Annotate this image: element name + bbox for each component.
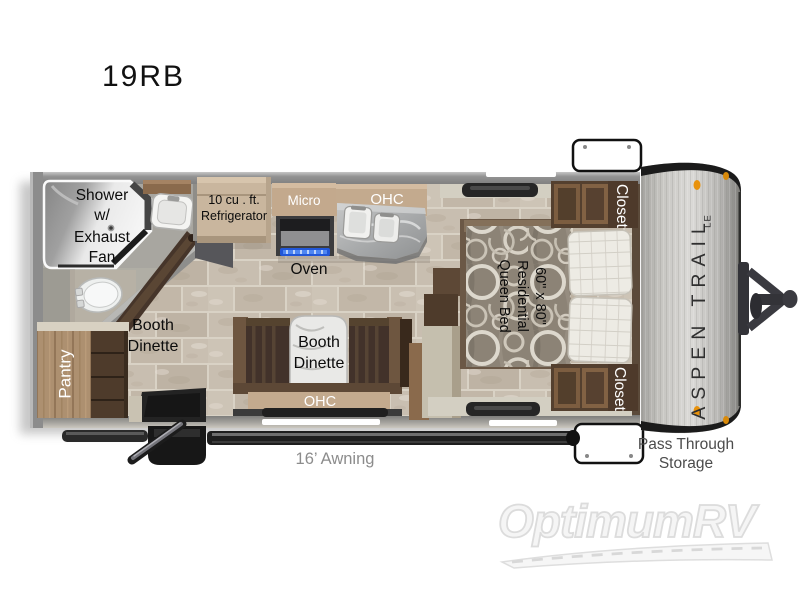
svg-text:Micro: Micro <box>288 193 321 208</box>
svg-text:Booth: Booth <box>132 317 174 334</box>
svg-text:Queen Bed: Queen Bed <box>496 259 512 332</box>
svg-text:16’ Awning: 16’ Awning <box>296 450 375 468</box>
svg-text:Dinette: Dinette <box>128 338 179 355</box>
svg-text:OHC: OHC <box>304 394 336 410</box>
svg-text:Fan: Fan <box>89 249 116 266</box>
svg-text:Closet: Closet <box>613 184 630 229</box>
svg-text:Pantry: Pantry <box>55 349 74 399</box>
svg-text:60" x 80": 60" x 80" <box>532 267 548 325</box>
svg-text:LE: LE <box>703 214 714 228</box>
svg-text:OptimumRV: OptimumRV <box>498 495 759 547</box>
svg-text:19RB: 19RB <box>102 60 185 93</box>
svg-text:Exhaust: Exhaust <box>74 229 131 246</box>
svg-text:Storage: Storage <box>659 455 713 472</box>
svg-text:Shower: Shower <box>76 187 129 204</box>
svg-text:ASPEN TRAIL: ASPEN TRAIL <box>688 216 710 419</box>
svg-text:Closet: Closet <box>611 367 628 412</box>
svg-text:Pass Through: Pass Through <box>638 436 734 453</box>
svg-text:Oven: Oven <box>290 261 327 278</box>
svg-text:Residential: Residential <box>514 260 530 332</box>
svg-text:Dinette: Dinette <box>294 355 345 372</box>
svg-text:Booth: Booth <box>298 334 340 351</box>
svg-text:Refrigerator: Refrigerator <box>201 209 267 223</box>
svg-text:w/: w/ <box>93 207 110 224</box>
svg-text:10 cu . ft.: 10 cu . ft. <box>208 193 259 207</box>
